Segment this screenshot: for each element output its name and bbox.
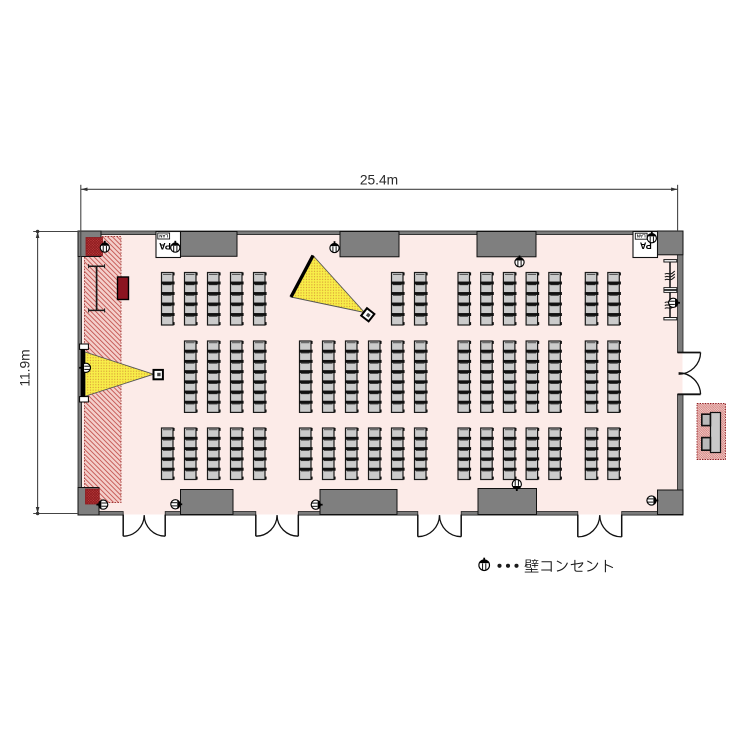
svg-text:LAN: LAN xyxy=(637,233,646,238)
svg-text:LAN: LAN xyxy=(159,233,168,238)
svg-text:25.4m: 25.4m xyxy=(360,172,398,187)
svg-text:PA: PA xyxy=(159,241,171,251)
svg-text:11.9m: 11.9m xyxy=(18,349,33,386)
